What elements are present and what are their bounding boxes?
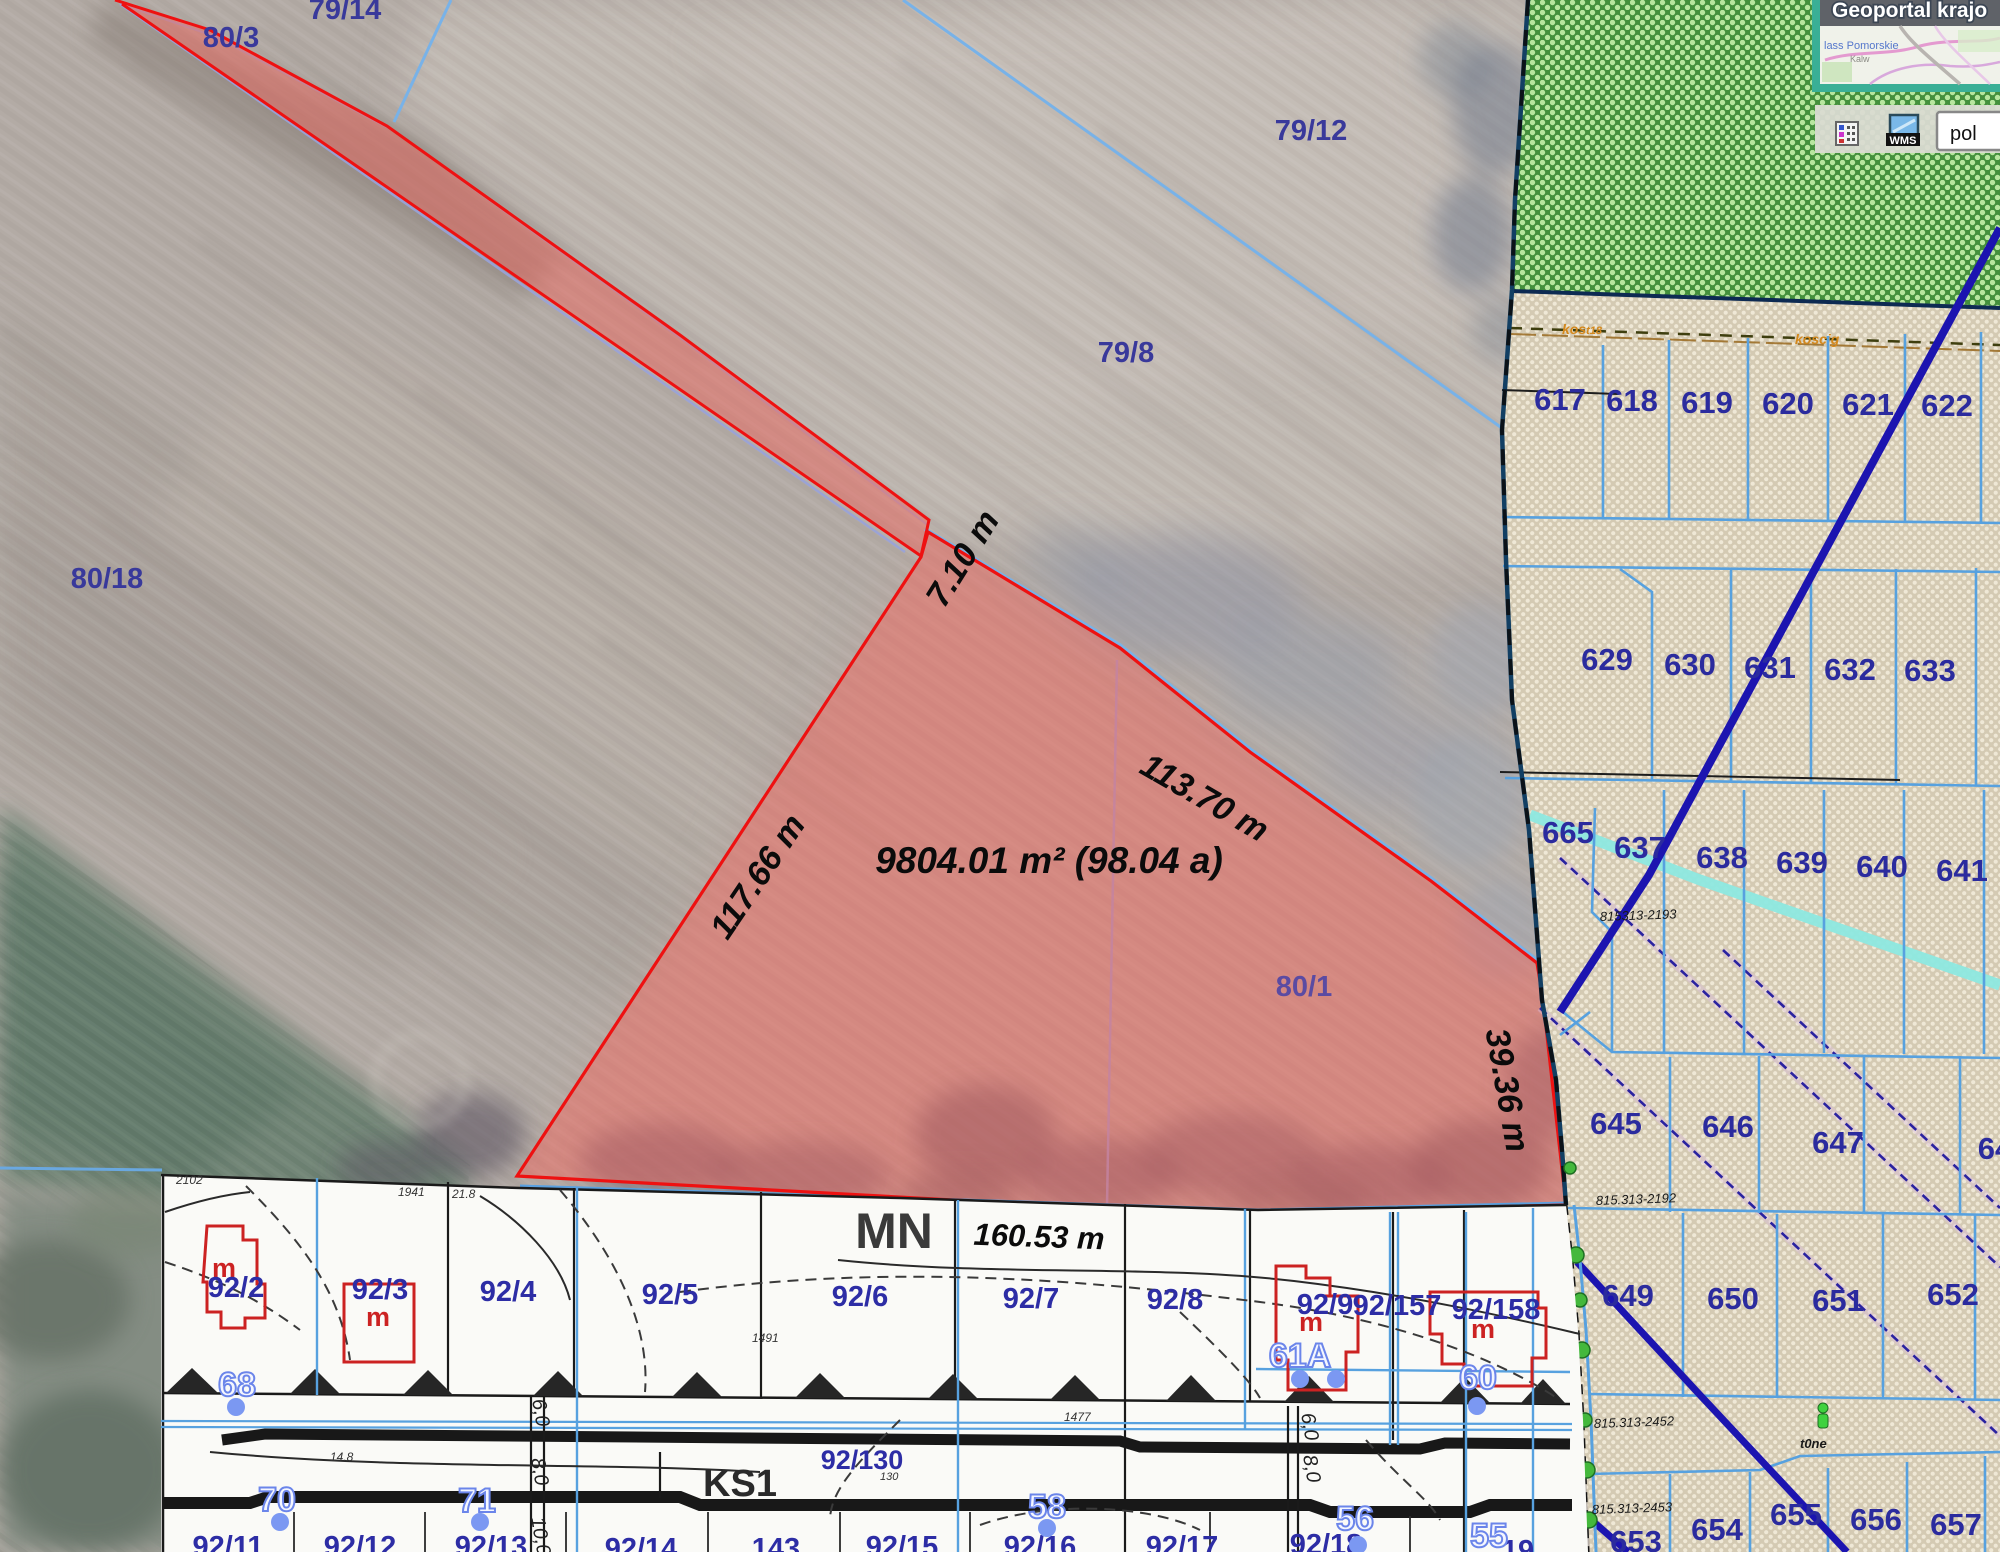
svg-text:64: 64 — [1978, 1131, 2000, 1166]
svg-text:650: 650 — [1707, 1281, 1759, 1316]
svg-text:79/8: 79/8 — [1098, 337, 1154, 369]
svg-text:92/157: 92/157 — [1353, 1290, 1442, 1322]
svg-text:633: 633 — [1904, 653, 1956, 688]
svg-text:koscig: koscig — [1795, 331, 1840, 347]
svg-text:631: 631 — [1744, 650, 1796, 685]
svg-text:92/11: 92/11 — [193, 1531, 264, 1552]
svg-text:92/7: 92/7 — [1003, 1283, 1059, 1315]
svg-text:160.53 m: 160.53 m — [973, 1217, 1105, 1257]
svg-text:619: 619 — [1681, 385, 1733, 420]
svg-text:617: 617 — [1534, 382, 1586, 417]
svg-text:lass Pomorskie: lass Pomorskie — [1824, 40, 1899, 52]
svg-text:639: 639 — [1776, 845, 1828, 880]
svg-text:1491: 1491 — [752, 1331, 779, 1345]
svg-text:80/1: 80/1 — [1276, 971, 1332, 1003]
svg-text:646: 646 — [1702, 1109, 1754, 1144]
svg-text:m: m — [366, 1302, 390, 1332]
svg-text:60: 60 — [1459, 1359, 1497, 1397]
svg-text:KS1: KS1 — [703, 1463, 777, 1505]
svg-text:92/13: 92/13 — [455, 1531, 528, 1552]
svg-text:815.313-2192: 815.313-2192 — [1596, 1190, 1677, 1208]
svg-text:Kalw: Kalw — [1850, 54, 1870, 64]
svg-text:9804.01 m² (98.04 a): 9804.01 m² (98.04 a) — [875, 840, 1223, 881]
svg-text:657: 657 — [1930, 1507, 1982, 1542]
svg-text:654: 654 — [1691, 1512, 1743, 1547]
svg-text:656: 656 — [1850, 1502, 1902, 1537]
svg-text:815313-2193: 815313-2193 — [1600, 906, 1678, 924]
svg-text:92/158: 92/158 — [1452, 1294, 1541, 1326]
svg-text:622: 622 — [1921, 388, 1973, 423]
svg-text:143: 143 — [752, 1533, 800, 1552]
svg-text:1941: 1941 — [398, 1185, 425, 1199]
svg-text:21.8: 21.8 — [451, 1187, 476, 1201]
svg-text:651: 651 — [1812, 1283, 1864, 1318]
svg-text:92/9: 92/9 — [1297, 1289, 1353, 1321]
svg-text:92/6: 92/6 — [832, 1281, 888, 1313]
svg-text:70: 70 — [258, 1481, 296, 1519]
svg-text:61A: 61A — [1269, 1337, 1331, 1375]
svg-text:55: 55 — [1470, 1517, 1508, 1552]
svg-text:92/12: 92/12 — [324, 1531, 397, 1552]
svg-text:629: 629 — [1581, 642, 1633, 677]
svg-text:637: 637 — [1614, 830, 1666, 865]
svg-text:632: 632 — [1824, 652, 1876, 687]
svg-text:t0ne: t0ne — [1800, 1436, 1827, 1451]
svg-text:665: 665 — [1542, 815, 1594, 850]
svg-text:92/16: 92/16 — [1004, 1531, 1077, 1552]
svg-text:655: 655 — [1770, 1497, 1822, 1532]
svg-text:92/130: 92/130 — [821, 1445, 904, 1475]
svg-text:815.313-2453: 815.313-2453 — [1592, 1499, 1673, 1517]
svg-text:645: 645 — [1590, 1106, 1642, 1141]
svg-text:618: 618 — [1606, 383, 1658, 418]
svg-text:79/12: 79/12 — [1275, 115, 1348, 147]
svg-text:pol: pol — [1950, 123, 1977, 145]
svg-text:2102: 2102 — [175, 1173, 203, 1187]
svg-text:620: 620 — [1762, 386, 1814, 421]
svg-text:WMS: WMS — [1890, 135, 1917, 147]
svg-text:653: 653 — [1610, 1524, 1662, 1552]
svg-text:80/18: 80/18 — [71, 563, 144, 595]
svg-text:92/14: 92/14 — [605, 1533, 678, 1552]
svg-text:92/4: 92/4 — [480, 1276, 536, 1308]
svg-text:1477: 1477 — [1064, 1410, 1092, 1424]
svg-text:638: 638 — [1696, 840, 1748, 875]
svg-text:640: 640 — [1856, 849, 1908, 884]
svg-text:630: 630 — [1664, 647, 1716, 682]
svg-text:92/5: 92/5 — [642, 1279, 698, 1311]
svg-text:649: 649 — [1602, 1278, 1654, 1313]
svg-text:79/14: 79/14 — [309, 0, 382, 26]
svg-text:14.8: 14.8 — [330, 1450, 354, 1464]
svg-text:MN: MN — [855, 1203, 933, 1259]
svg-text:92/2: 92/2 — [208, 1272, 264, 1304]
svg-text:92/17: 92/17 — [1146, 1531, 1219, 1552]
svg-text:80/3: 80/3 — [203, 22, 259, 54]
svg-text:Geoportal krajo: Geoportal krajo — [1832, 0, 1987, 22]
svg-text:92/3: 92/3 — [352, 1274, 408, 1306]
svg-text:621: 621 — [1842, 387, 1894, 422]
svg-text:92/15: 92/15 — [866, 1531, 939, 1552]
svg-text:647: 647 — [1812, 1125, 1864, 1160]
svg-text:652: 652 — [1927, 1277, 1979, 1312]
svg-text:92/8: 92/8 — [1147, 1284, 1203, 1316]
svg-text:641: 641 — [1936, 853, 1988, 888]
svg-text:56: 56 — [1336, 1500, 1374, 1538]
svg-text:815.313-2452: 815.313-2452 — [1594, 1413, 1675, 1431]
